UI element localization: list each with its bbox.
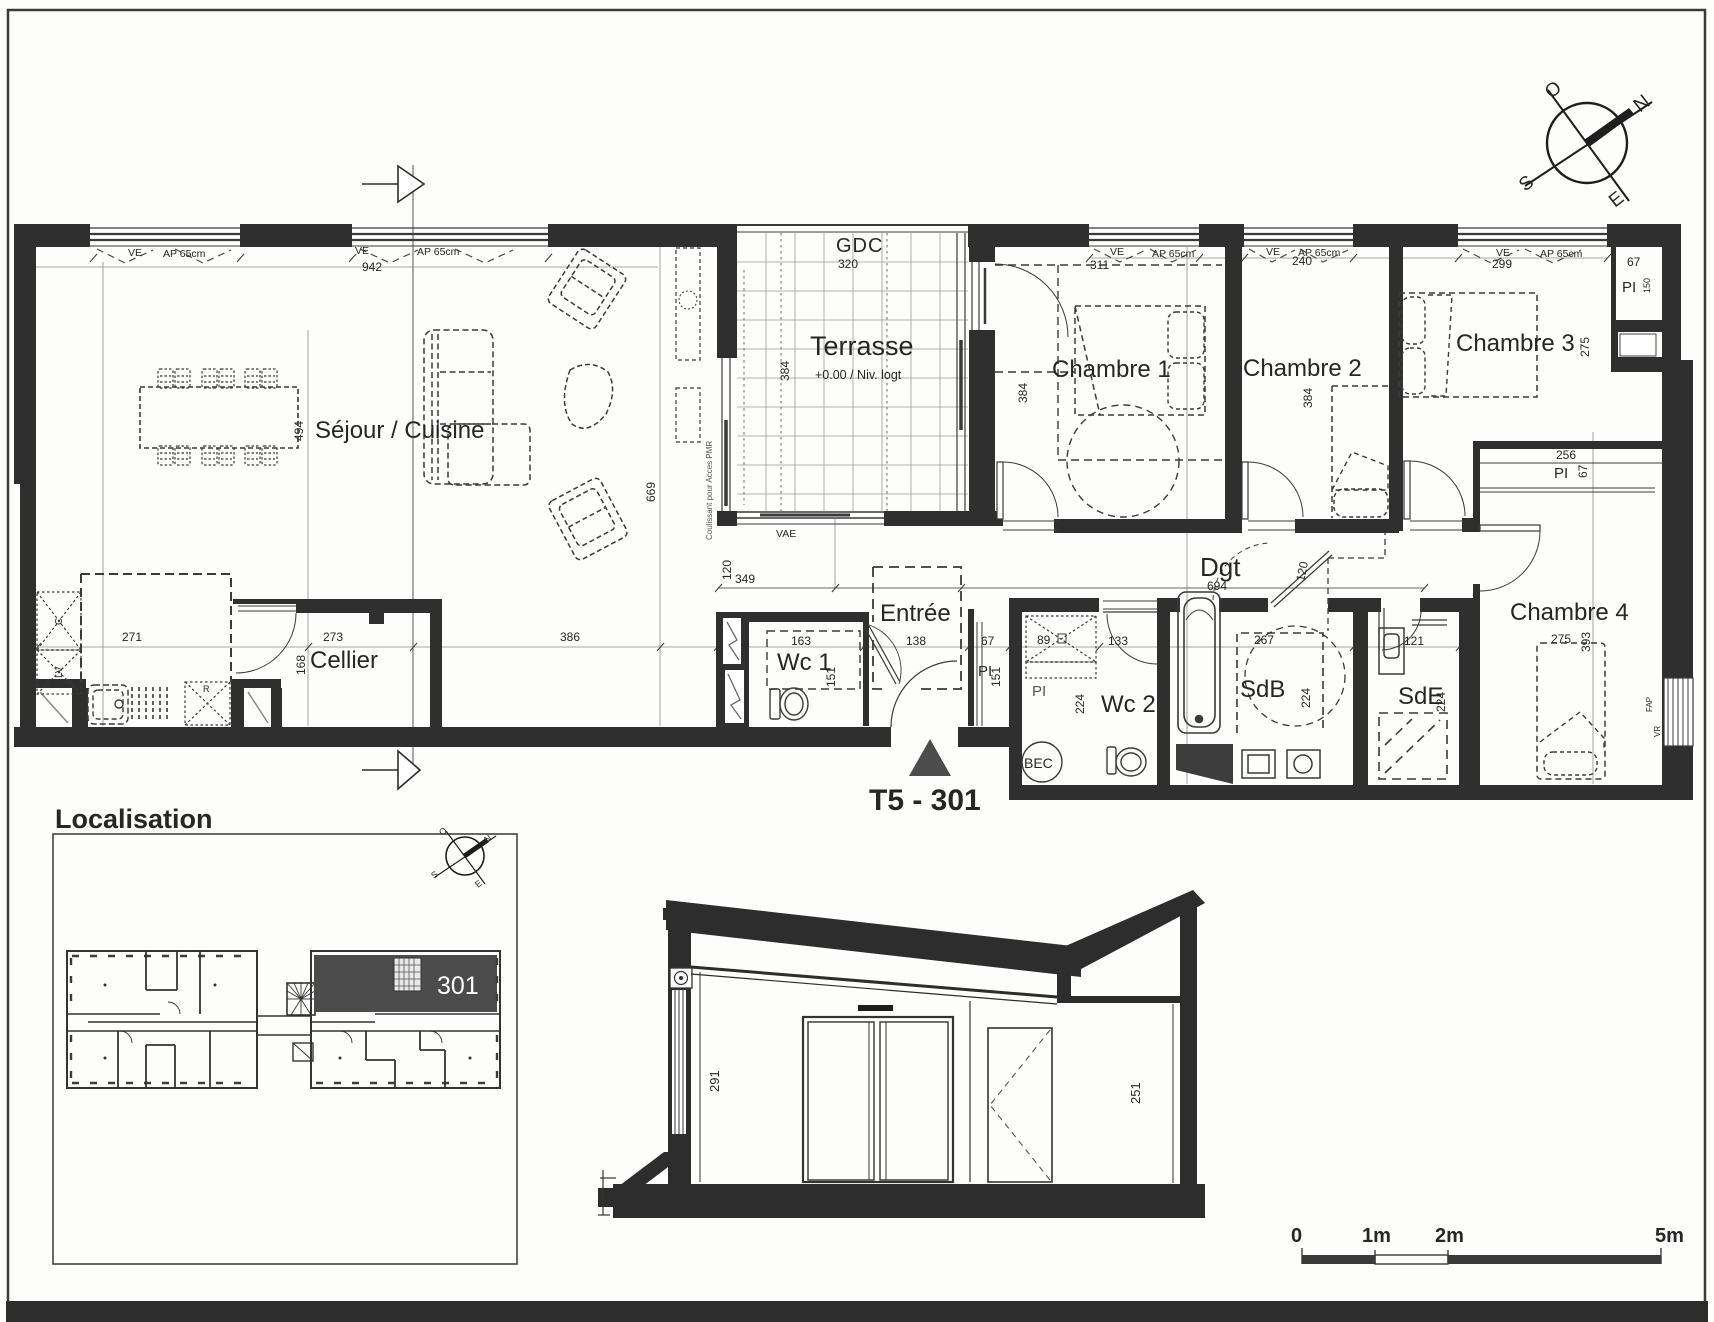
svg-text:C: C xyxy=(54,618,65,625)
svg-text:121: 121 xyxy=(1404,634,1424,648)
svg-text:Coulissant pour Acces PMR: Coulissant pour Acces PMR xyxy=(705,441,714,540)
svg-text:Chambre 4: Chambre 4 xyxy=(1510,599,1629,626)
svg-text:299: 299 xyxy=(1492,257,1512,271)
svg-text:LV: LV xyxy=(54,666,65,678)
svg-text:PI: PI xyxy=(1554,465,1568,482)
svg-text:301: 301 xyxy=(437,972,479,1000)
svg-text:150: 150 xyxy=(1642,278,1652,293)
svg-text:AP 65cm: AP 65cm xyxy=(1540,248,1583,260)
svg-text:256: 256 xyxy=(1556,448,1576,462)
svg-text:VAE: VAE xyxy=(776,528,796,540)
svg-text:Terrasse: Terrasse xyxy=(810,331,914,361)
svg-text:386: 386 xyxy=(560,630,580,644)
svg-text:VE: VE xyxy=(128,247,142,259)
svg-text:224: 224 xyxy=(1073,694,1087,714)
svg-text:T5 - 301: T5 - 301 xyxy=(869,784,981,817)
svg-text:120: 120 xyxy=(720,560,734,580)
svg-text:1m: 1m xyxy=(1362,1225,1391,1247)
svg-text:Cellier: Cellier xyxy=(310,647,378,674)
svg-text:224: 224 xyxy=(1299,688,1313,708)
svg-text:89: 89 xyxy=(1037,633,1051,647)
svg-text:+0.00 / Niv. logt: +0.00 / Niv. logt xyxy=(815,368,902,382)
svg-text:942: 942 xyxy=(362,260,382,274)
svg-text:Entrée: Entrée xyxy=(880,600,951,627)
svg-text:GDC: GDC xyxy=(836,235,883,257)
svg-text:240: 240 xyxy=(1292,254,1312,268)
svg-text:267: 267 xyxy=(1254,633,1274,647)
svg-text:384: 384 xyxy=(778,361,792,381)
svg-text:Dgt: Dgt xyxy=(1200,552,1241,582)
svg-text:PI: PI xyxy=(1032,683,1046,700)
svg-text:275: 275 xyxy=(1578,337,1592,357)
svg-text:Wc 2: Wc 2 xyxy=(1101,691,1156,718)
svg-text:2m: 2m xyxy=(1435,1225,1464,1247)
svg-text:694: 694 xyxy=(1207,579,1227,593)
svg-text:5m: 5m xyxy=(1655,1225,1684,1247)
svg-text:138: 138 xyxy=(906,634,926,648)
svg-text:151: 151 xyxy=(824,667,838,687)
svg-text:VE: VE xyxy=(1110,246,1124,258)
svg-text:151: 151 xyxy=(989,667,1003,687)
svg-text:133: 133 xyxy=(1108,634,1128,648)
svg-text:BEC: BEC xyxy=(1024,755,1053,771)
svg-text:275: 275 xyxy=(1551,632,1571,646)
svg-text:291: 291 xyxy=(707,1070,722,1092)
svg-text:VE: VE xyxy=(355,245,369,257)
svg-text:VE: VE xyxy=(1266,246,1280,258)
svg-text:251: 251 xyxy=(1128,1082,1143,1104)
svg-text:669: 669 xyxy=(644,482,658,502)
svg-text:VR: VR xyxy=(1653,726,1662,737)
svg-text:Chambre 2: Chambre 2 xyxy=(1243,355,1362,382)
svg-text:349: 349 xyxy=(735,572,755,586)
svg-text:PI: PI xyxy=(1622,279,1636,296)
svg-text:Séjour / Cuisine: Séjour / Cuisine xyxy=(315,417,484,444)
svg-text:67: 67 xyxy=(1576,464,1590,478)
svg-text:Localisation: Localisation xyxy=(55,804,213,834)
svg-text:320: 320 xyxy=(838,257,858,271)
svg-text:393: 393 xyxy=(1579,632,1593,652)
svg-text:R: R xyxy=(203,684,210,694)
svg-text:384: 384 xyxy=(1301,388,1315,408)
svg-text:224: 224 xyxy=(1434,692,1448,712)
svg-text:168: 168 xyxy=(294,655,308,675)
svg-text:SdB: SdB xyxy=(1240,676,1285,703)
svg-text:AP 65cm: AP 65cm xyxy=(163,248,206,260)
svg-text:494: 494 xyxy=(292,421,306,441)
svg-text:163: 163 xyxy=(791,634,811,648)
svg-text:FAP: FAP xyxy=(1645,697,1654,712)
svg-text:273: 273 xyxy=(323,630,343,644)
svg-text:384: 384 xyxy=(1016,383,1030,403)
svg-text:67: 67 xyxy=(981,634,995,648)
svg-text:AP 65cm: AP 65cm xyxy=(1152,248,1195,260)
svg-text:67: 67 xyxy=(1627,255,1641,269)
svg-text:271: 271 xyxy=(122,630,142,644)
svg-text:0: 0 xyxy=(1291,1225,1302,1247)
svg-text:Chambre 3: Chambre 3 xyxy=(1456,330,1575,357)
svg-text:Chambre 1: Chambre 1 xyxy=(1052,356,1171,383)
svg-text:AP 65cm: AP 65cm xyxy=(417,246,460,258)
